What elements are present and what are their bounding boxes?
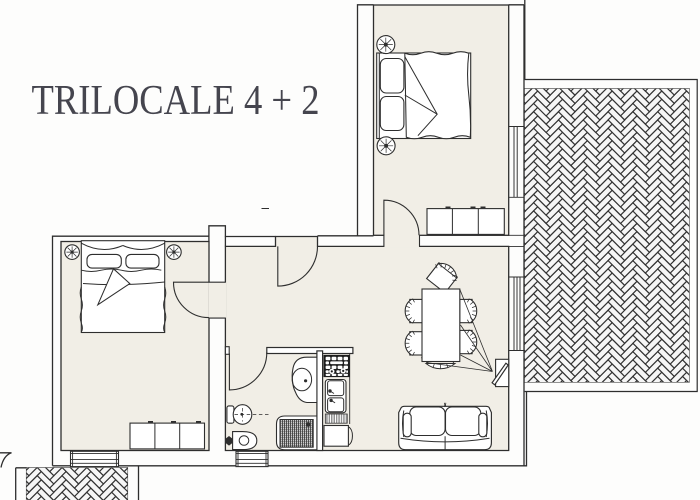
svg-text:TRILOCALE 4 + 2: TRILOCALE 4 + 2 (32, 78, 320, 124)
